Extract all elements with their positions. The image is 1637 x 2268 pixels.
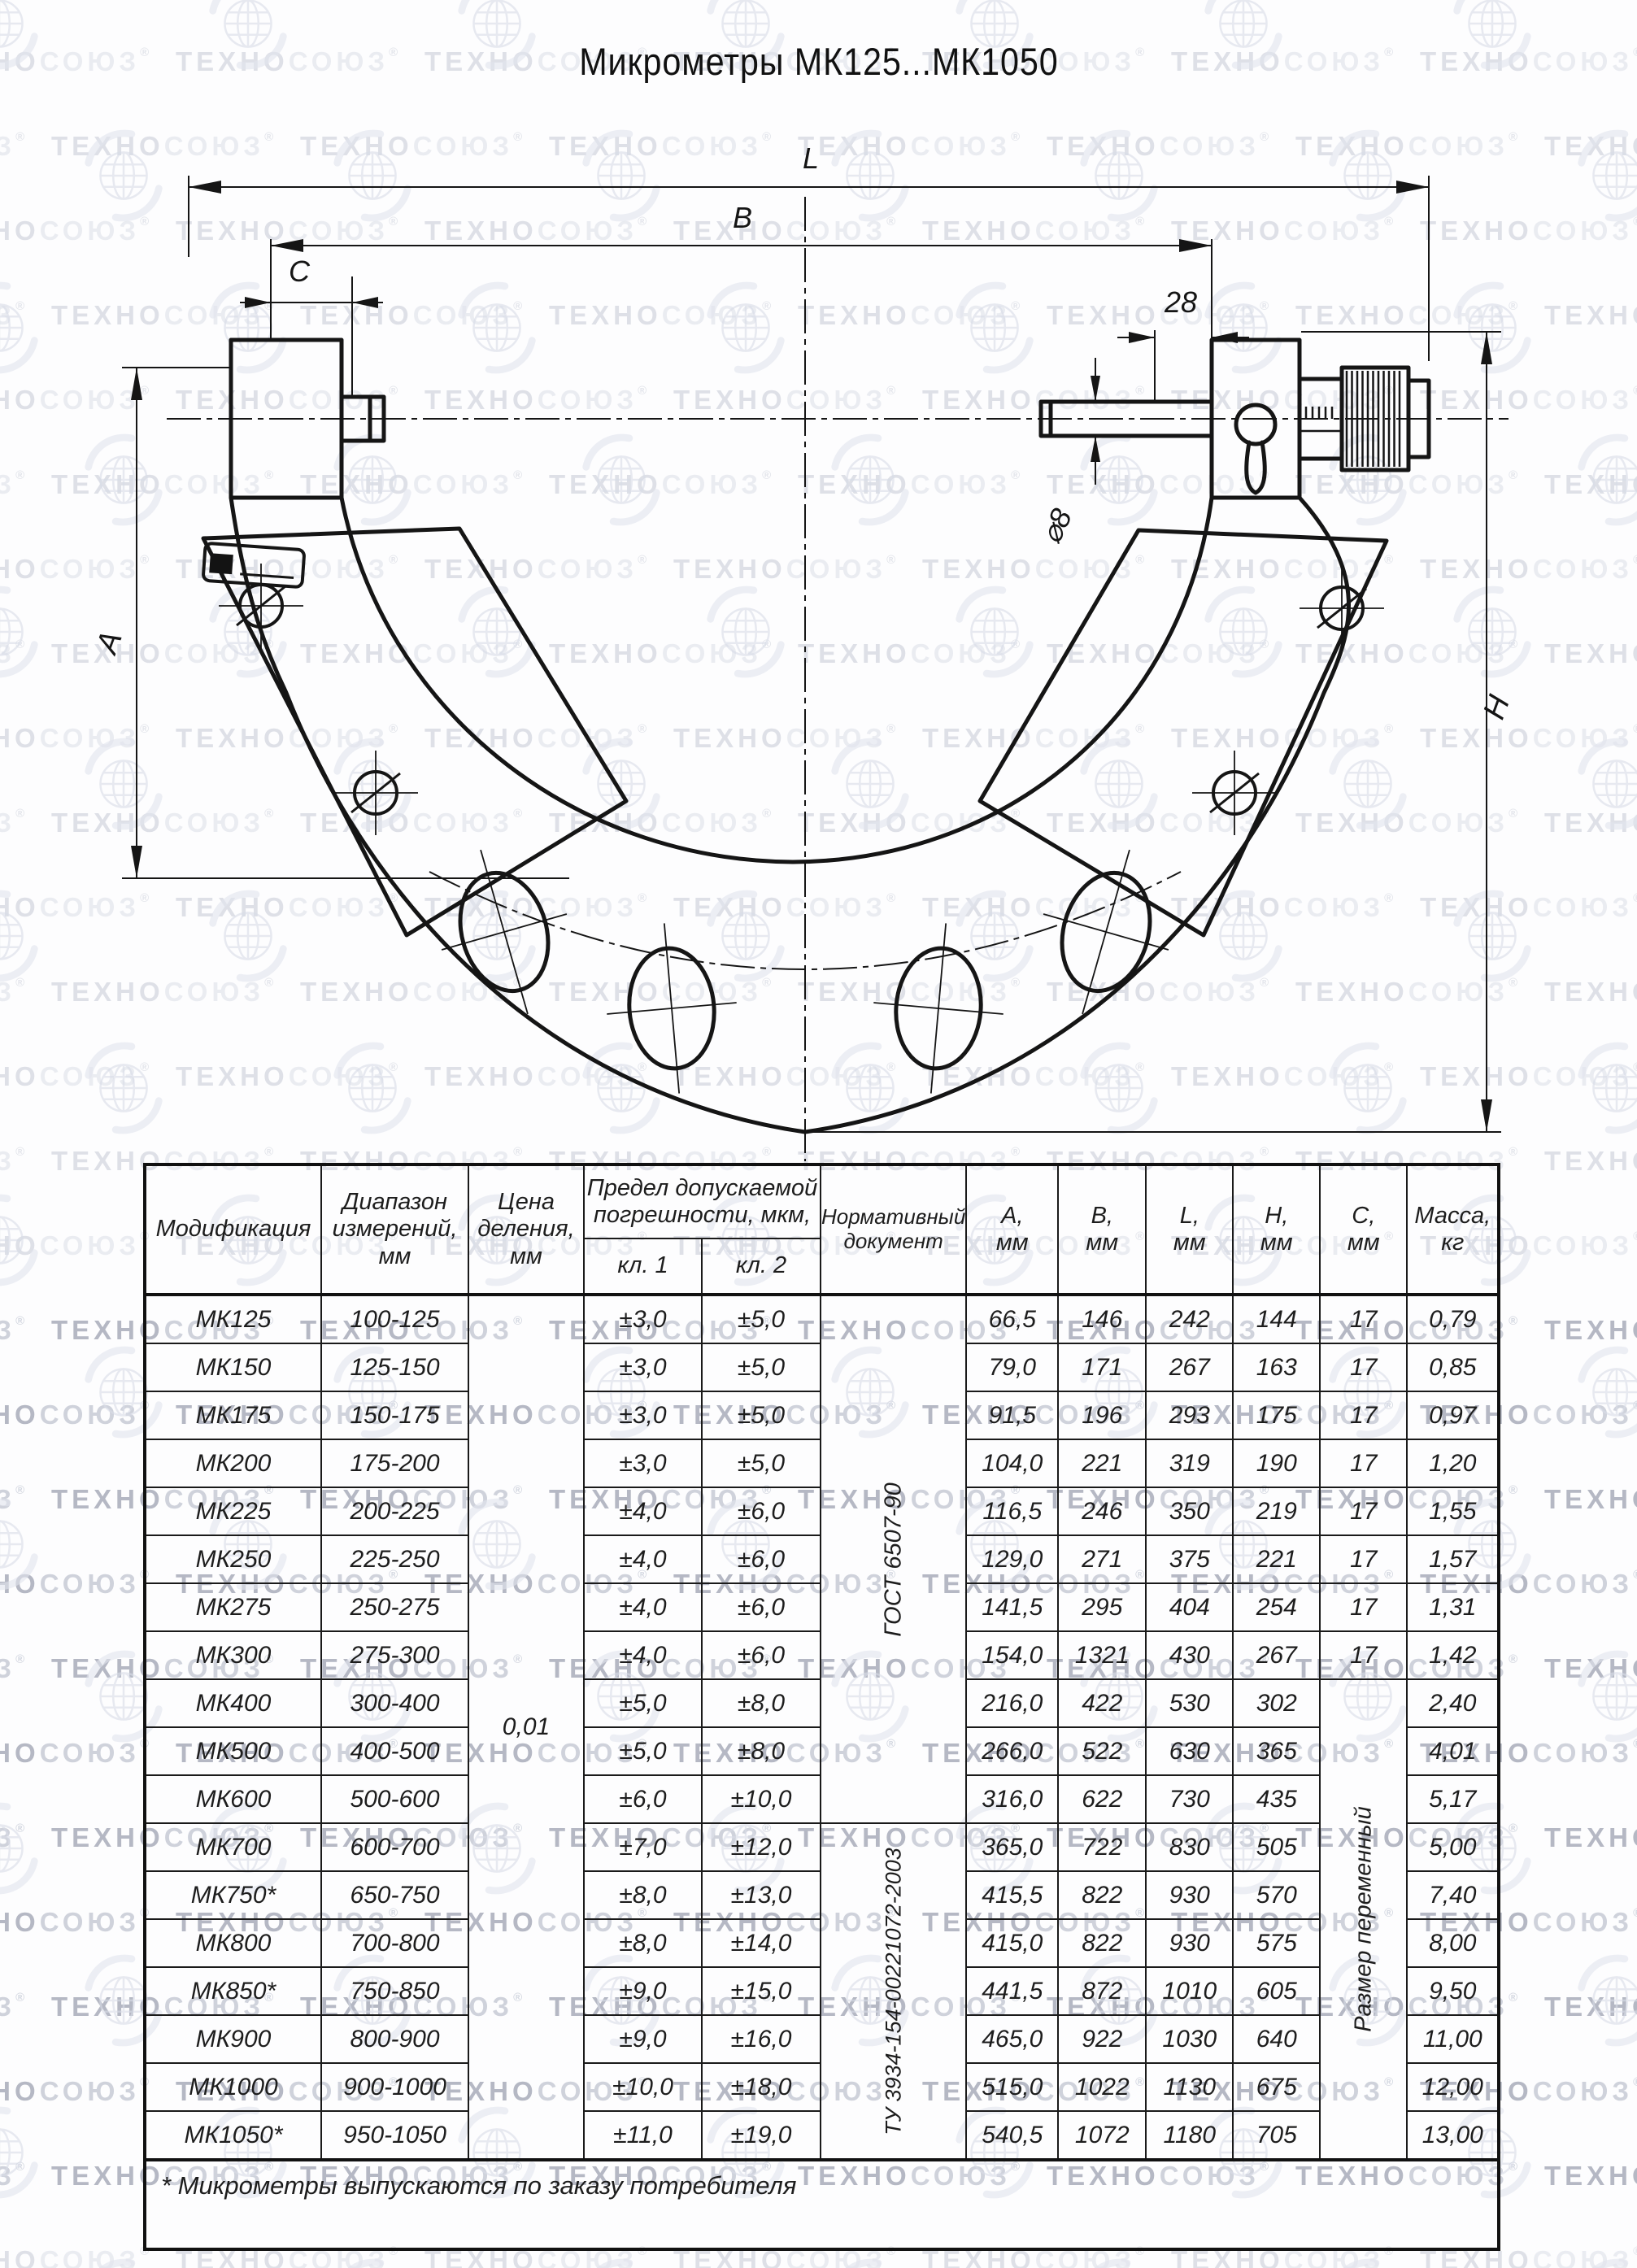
cell-h: 219 [1233,1487,1320,1535]
cell-h: 605 [1233,1967,1320,2015]
cell-class1: ±7,0 [584,1823,702,1871]
cell-class2: ±6,0 [702,1583,821,1631]
cell-b: 922 [1058,2015,1146,2063]
brand-tag [203,543,305,587]
cell-l: 242 [1146,1295,1233,1343]
page: ТЕХНОСОЮЗ®ТЕХНОСОЮЗ®ТЕХНОСОЮЗ®ТЕХНОСОЮЗ®… [0,0,1637,2268]
cell-h: 640 [1233,2015,1320,2063]
cell-class2: ±14,0 [702,1919,821,1967]
cell-division-value: 0,01 [468,1295,584,2160]
cell-class1: ±5,0 [584,1727,702,1775]
cell-a: 515,0 [966,2063,1058,2111]
spec-table: Модификация Диапазон измерений, мм Цена … [143,1163,1500,2251]
cell-range: 150-175 [321,1391,468,1439]
cell-class1: ±11,0 [584,2111,702,2160]
cell-range: 650-750 [321,1871,468,1919]
cell-class2: ±6,0 [702,1487,821,1535]
cell-l: 350 [1146,1487,1233,1535]
cell-class2: ±13,0 [702,1871,821,1919]
cell-modification: МК400 [145,1679,321,1727]
dim-label-L: L [803,141,819,175]
cell-modification: МК1050* [145,2111,321,2160]
dimension-labels: L B C 28 ⌀8 A H [89,141,1517,724]
cell-l: 930 [1146,1919,1233,1967]
header-l: L, мм [1146,1164,1233,1295]
cell-a: 66,5 [966,1295,1058,1343]
cell-a: 365,0 [966,1823,1058,1871]
technosouz-globe-icon [0,2105,47,2201]
cell-variable-size: Размер переменный [1320,1679,1407,2160]
cell-b: 822 [1058,1871,1146,1919]
header-range: Диапазон измерений, мм [321,1164,468,1295]
technosouz-globe-icon [1569,1344,1637,1440]
cell-a: 116,5 [966,1487,1058,1535]
cell-class2: ±10,0 [702,1775,821,1823]
cell-l: 267 [1146,1343,1233,1391]
cell-h: 435 [1233,1775,1320,1823]
cell-b: 622 [1058,1775,1146,1823]
cell-class1: ±8,0 [584,1919,702,1967]
cell-mass: 4,01 [1407,1727,1499,1775]
cell-h: 575 [1233,1919,1320,1967]
cell-class2: ±12,0 [702,1823,821,1871]
cell-class1: ±6,0 [584,1775,702,1823]
dim-label-dia8: ⌀8 [1034,503,1078,548]
cell-modification: МК600 [145,1775,321,1823]
cell-modification: МК150 [145,1343,321,1391]
cell-class2: ±15,0 [702,1967,821,2015]
cell-a: 441,5 [966,1967,1058,2015]
technosouz-globe-icon [1071,2257,1167,2268]
cell-mass: 2,40 [1407,1679,1499,1727]
cell-mass: 9,50 [1407,1967,1499,2015]
cell-class1: ±3,0 [584,1343,702,1391]
cell-h: 570 [1233,1871,1320,1919]
technosouz-globe-icon [822,2257,918,2268]
header-division: Цена деления, мм [468,1164,584,1295]
cell-l: 430 [1146,1631,1233,1679]
cell-h: 302 [1233,1679,1320,1727]
cell-class1: ±4,0 [584,1535,702,1583]
cell-class1: ±4,0 [584,1631,702,1679]
cell-a: 540,5 [966,2111,1058,2160]
cell-range: 800-900 [321,2015,468,2063]
cell-mass: 1,57 [1407,1535,1499,1583]
watermark-text: ТЕХНОСОЮЗ® [1544,1483,1637,1515]
cell-b: 522 [1058,1727,1146,1775]
cell-a: 129,0 [966,1535,1058,1583]
cell-b: 872 [1058,1967,1146,2015]
cell-c: 17 [1320,1487,1407,1535]
cell-l: 404 [1146,1583,1233,1631]
cell-modification: МК125 [145,1295,321,1343]
cell-modification: МК250 [145,1535,321,1583]
cell-b: 1072 [1058,2111,1146,2160]
cell-modification: МК275 [145,1583,321,1631]
cell-l: 830 [1146,1823,1233,1871]
header-modification: Модификация [145,1164,321,1295]
cell-b: 822 [1058,1919,1146,1967]
header-c: С, мм [1320,1164,1407,1295]
cell-class1: ±9,0 [584,1967,702,2015]
cell-modification: МК175 [145,1391,321,1439]
spec-table-body: МК125100-1250,01±3,0±5,0ГОСТ 6507-9066,5… [145,1295,1499,2160]
cell-l: 1030 [1146,2015,1233,2063]
dim-label-28: 28 [1164,285,1197,319]
cell-a: 91,5 [966,1391,1058,1439]
cell-mass: 5,00 [1407,1823,1499,1871]
technosouz-globe-icon [0,1496,47,1592]
cell-modification: МК900 [145,2015,321,2063]
cell-h: 705 [1233,2111,1320,2160]
cell-l: 319 [1146,1439,1233,1487]
cell-mass: 5,17 [1407,1775,1499,1823]
cell-b: 271 [1058,1535,1146,1583]
technosouz-globe-icon [76,2257,172,2268]
cell-l: 730 [1146,1775,1233,1823]
cell-range: 600-700 [321,1823,468,1871]
cell-c: 17 [1320,1439,1407,1487]
technosouz-globe-icon [1569,1648,1637,1744]
cell-class2: ±19,0 [702,2111,821,2160]
technosouz-globe-icon [0,1800,47,1896]
dim-label-H: H [1477,690,1517,724]
watermark-text: ТЕХНОСОЮЗ® [1544,2160,1637,2192]
cell-range: 500-600 [321,1775,468,1823]
cell-c: 17 [1320,1535,1407,1583]
cell-modification: МК800 [145,1919,321,1967]
cell-l: 293 [1146,1391,1233,1439]
cell-normative-tu: ТУ 3934-154-00221072-2003 [821,1823,966,2160]
cell-h: 675 [1233,2063,1320,2111]
cell-l: 375 [1146,1535,1233,1583]
cell-mass: 0,97 [1407,1391,1499,1439]
header-normative: Нормативный документ [821,1164,966,1295]
cell-normative-gost: ГОСТ 6507-90 [821,1295,966,1823]
cell-b: 1022 [1058,2063,1146,2111]
cell-l: 1010 [1146,1967,1233,2015]
micrometer-frame [203,340,1429,1132]
cell-b: 295 [1058,1583,1146,1631]
cell-class2: ±5,0 [702,1295,821,1343]
cell-mass: 11,00 [1407,2015,1499,2063]
cell-class2: ±5,0 [702,1439,821,1487]
header-a: А, мм [966,1164,1058,1295]
cell-mass: 1,20 [1407,1439,1499,1487]
cell-range: 950-1050 [321,2111,468,2160]
cell-mass: 1,55 [1407,1487,1499,1535]
cell-range: 700-800 [321,1919,468,1967]
cell-class1: ±8,0 [584,1871,702,1919]
header-class2: кл. 2 [702,1238,821,1295]
cell-h: 505 [1233,1823,1320,1871]
cell-range: 275-300 [321,1631,468,1679]
cell-class2: ±8,0 [702,1727,821,1775]
cell-b: 171 [1058,1343,1146,1391]
cell-modification: МК700 [145,1823,321,1871]
cell-b: 246 [1058,1487,1146,1535]
cell-mass: 7,40 [1407,1871,1499,1919]
cell-mass: 0,79 [1407,1295,1499,1343]
cell-modification: МК500 [145,1727,321,1775]
header-class1: кл. 1 [584,1238,702,1295]
cell-a: 316,0 [966,1775,1058,1823]
cell-h: 144 [1233,1295,1320,1343]
cell-class2: ±18,0 [702,2063,821,2111]
cell-b: 196 [1058,1391,1146,1439]
cell-l: 1180 [1146,2111,1233,2160]
cell-l: 930 [1146,1871,1233,1919]
cell-modification: МК200 [145,1439,321,1487]
cell-h: 365 [1233,1727,1320,1775]
cell-a: 465,0 [966,2015,1058,2063]
technosouz-globe-icon [1569,2257,1637,2268]
cell-class1: ±9,0 [584,2015,702,2063]
cell-b: 146 [1058,1295,1146,1343]
cell-class1: ±3,0 [584,1391,702,1439]
cell-class1: ±3,0 [584,1439,702,1487]
cell-c: 17 [1320,1391,1407,1439]
cell-range: 225-250 [321,1535,468,1583]
table-header: Модификация Диапазон измерений, мм Цена … [145,1164,1499,1295]
cell-c: 17 [1320,1295,1407,1343]
cell-class2: ±5,0 [702,1391,821,1439]
cell-a: 154,0 [966,1631,1058,1679]
cell-c: 17 [1320,1583,1407,1631]
cell-mass: 0,85 [1407,1343,1499,1391]
footnote-row: * Микрометры выпускаются по заказу потре… [145,2160,1499,2249]
cell-modification: МК300 [145,1631,321,1679]
cell-class2: ±6,0 [702,1535,821,1583]
footnote: * Микрометры выпускаются по заказу потре… [145,2160,1499,2249]
cell-b: 722 [1058,1823,1146,1871]
cell-mass: 8,00 [1407,1919,1499,1967]
header-h: Н, мм [1233,1164,1320,1295]
cell-modification: МК850* [145,1967,321,2015]
cell-range: 100-125 [321,1295,468,1343]
cell-mass: 1,31 [1407,1583,1499,1631]
heat-shield-left [203,529,626,935]
cell-l: 630 [1146,1727,1233,1775]
cell-h: 175 [1233,1391,1320,1439]
table-row: МК125100-1250,01±3,0±5,0ГОСТ 6507-9066,5… [145,1295,1499,1343]
table-row: МК700600-700±7,0±12,0ТУ 3934-154-0022107… [145,1823,1499,1871]
cell-h: 254 [1233,1583,1320,1631]
cell-modification: МК750* [145,1871,321,1919]
cell-a: 141,5 [966,1583,1058,1631]
cell-mass: 12,00 [1407,2063,1499,2111]
dim-label-A: A [89,627,129,660]
watermark-text: ТЕХНОСОЮЗ® [0,1314,24,1346]
cell-range: 900-1000 [321,2063,468,2111]
cell-mass: 13,00 [1407,2111,1499,2160]
cell-class1: ±5,0 [584,1679,702,1727]
technosouz-globe-icon [1569,1952,1637,2048]
cell-class2: ±8,0 [702,1679,821,1727]
cell-h: 190 [1233,1439,1320,1487]
cell-range: 400-500 [321,1727,468,1775]
dim-label-C: C [289,255,311,288]
cell-class1: ±3,0 [584,1295,702,1343]
watermark-text: ТЕХНОСОЮЗ® [1544,1822,1637,1853]
cell-range: 200-225 [321,1487,468,1535]
cell-range: 250-275 [321,1583,468,1631]
cell-range: 300-400 [321,1679,468,1727]
cell-h: 267 [1233,1631,1320,1679]
shield-screws [219,564,1384,835]
cell-b: 1321 [1058,1631,1146,1679]
cell-a: 415,0 [966,1919,1058,1967]
cell-h: 163 [1233,1343,1320,1391]
page-title: Микрометры МК125...МК1050 [0,39,1637,84]
watermark-text: ТЕХНОСОЮЗ® [0,1991,24,2022]
watermark-text: ТЕХНОСОЮЗ® [0,1652,24,1684]
technosouz-globe-icon [324,2257,420,2268]
cell-range: 175-200 [321,1439,468,1487]
header-b: В, мм [1058,1164,1146,1295]
centerlines [167,197,1509,1161]
cell-class1: ±10,0 [584,2063,702,2111]
cell-class2: ±5,0 [702,1343,821,1391]
technosouz-globe-icon [0,1192,47,1288]
cell-l: 1130 [1146,2063,1233,2111]
cell-modification: МК225 [145,1487,321,1535]
header-mass: Масса, кг [1407,1164,1499,1295]
technosouz-globe-icon [1320,2257,1416,2268]
cell-class2: ±16,0 [702,2015,821,2063]
cell-mass: 1,42 [1407,1631,1499,1679]
cell-a: 216,0 [966,1679,1058,1727]
micrometer-drawing: L B C 28 ⌀8 A H [0,0,1637,1163]
technosouz-globe-icon [573,2257,669,2268]
watermark-text: ТЕХНОСОЮЗ® [1544,1314,1637,1346]
cell-b: 422 [1058,1679,1146,1727]
heat-shield-right [980,530,1387,935]
cell-modification: МК1000 [145,2063,321,2111]
cell-c: 17 [1320,1631,1407,1679]
cell-l: 530 [1146,1679,1233,1727]
cell-a: 79,0 [966,1343,1058,1391]
dimension-arrows [131,181,1492,1132]
cell-range: 750-850 [321,1967,468,2015]
cell-class2: ±6,0 [702,1631,821,1679]
cell-a: 266,0 [966,1727,1058,1775]
dimension-lines [122,176,1501,1132]
cell-c: 17 [1320,1343,1407,1391]
cell-h: 221 [1233,1535,1320,1583]
cell-a: 415,5 [966,1871,1058,1919]
watermark-text: ТЕХНОСОЮЗ® [0,1906,149,1938]
dim-label-B: B [733,201,752,234]
header-error-limit: Предел допускаемой погрешности, мкм, [584,1164,821,1238]
cell-class1: ±4,0 [584,1487,702,1535]
cell-range: 125-150 [321,1343,468,1391]
cell-class1: ±4,0 [584,1583,702,1631]
watermark-text: ТЕХНОСОЮЗ® [0,2075,149,2107]
cell-a: 104,0 [966,1439,1058,1487]
cell-b: 221 [1058,1439,1146,1487]
